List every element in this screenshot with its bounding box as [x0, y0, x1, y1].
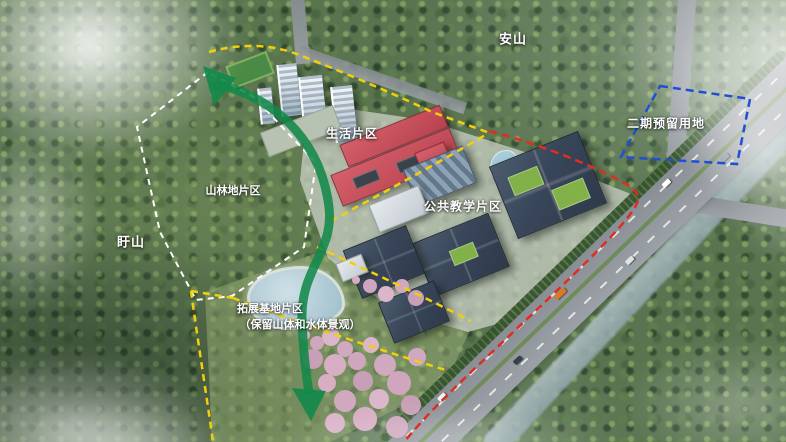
green-roof-patch	[551, 177, 591, 210]
zone-label-mountain-forest: 山林地片区	[206, 182, 261, 198]
label-west-mountain: 盱山	[117, 232, 145, 251]
car	[625, 255, 635, 264]
courtyard	[352, 169, 381, 190]
label-north-mountain: 安山	[499, 29, 527, 48]
zone-label-public-teaching: 公共教学片区	[424, 198, 502, 215]
zone-label-phase2-reserved: 二期预留用地	[627, 115, 705, 132]
green-roof-patch	[449, 242, 479, 267]
cherry-blossom-cluster	[352, 276, 360, 284]
zone-label-living: 生活片区	[326, 125, 378, 142]
campus-masterplan-aerial-rendering: 安山 二期预留用地 生活片区 山林地片区 盱山 公共教学片区 拓展基地片区 （保…	[0, 0, 786, 442]
zone-label-expansion-base: 拓展基地片区	[237, 300, 303, 316]
zone-note-expansion-base: （保留山体和水体景观）	[240, 316, 361, 332]
green-roof-patch	[507, 166, 544, 197]
